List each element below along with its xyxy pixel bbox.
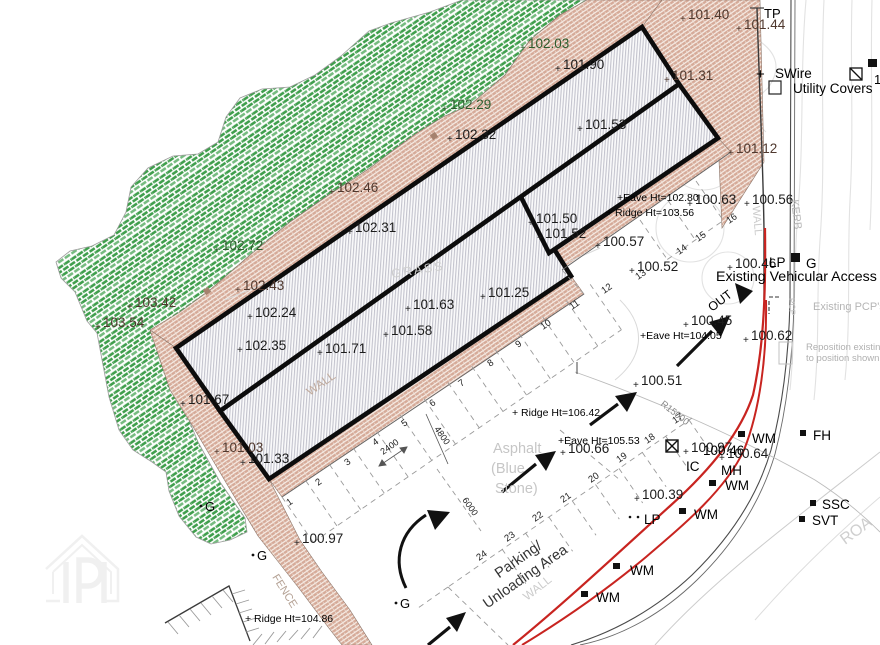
svg-text:102.46: 102.46 (337, 180, 378, 195)
svg-text:+: + (744, 199, 750, 210)
svg-text:1: 1 (874, 72, 880, 87)
svg-text:+ Ridge Ht=106.42: + Ridge Ht=106.42 (512, 407, 600, 419)
svg-text:101.71: 101.71 (325, 341, 366, 356)
svg-text:102.31: 102.31 (355, 220, 396, 235)
svg-text:to position shown: to position shown (806, 353, 879, 364)
svg-text:WM: WM (752, 431, 776, 446)
svg-text:G: G (257, 548, 267, 563)
svg-text:101.31: 101.31 (672, 68, 713, 83)
svg-text:FH: FH (813, 428, 831, 443)
svg-text:ROA: ROA (837, 514, 875, 548)
svg-text:7: 7 (456, 377, 467, 389)
svg-text:Existing PCP's: Existing PCP's (813, 301, 880, 313)
svg-text:102.35: 102.35 (245, 338, 286, 353)
svg-text:OUT: OUT (705, 287, 735, 314)
svg-text:100.64: 100.64 (727, 446, 769, 461)
svg-text:+: + (577, 124, 583, 135)
svg-text:+: + (537, 233, 543, 244)
svg-text:+: + (555, 64, 561, 75)
svg-text:+: + (756, 66, 765, 83)
svg-text:LP: LP (769, 255, 786, 270)
svg-text:102.29: 102.29 (450, 97, 491, 112)
svg-text:100.45: 100.45 (691, 313, 732, 328)
svg-text:(Blue: (Blue (491, 461, 525, 477)
svg-text:20: 20 (586, 470, 601, 485)
svg-text:+: + (629, 266, 635, 277)
svg-text:+: + (595, 241, 601, 252)
svg-text:100.39: 100.39 (642, 487, 683, 502)
svg-text:+: + (520, 43, 526, 54)
svg-text:101.40: 101.40 (688, 7, 729, 22)
svg-text:24: 24 (474, 548, 489, 563)
svg-text:+: + (95, 322, 101, 333)
svg-text:101.52: 101.52 (545, 226, 586, 241)
svg-text:SSC: SSC (822, 497, 850, 512)
svg-text:+Eave Ht=102.80: +Eave Ht=102.80 (617, 192, 699, 204)
svg-text:+: + (528, 218, 534, 229)
svg-text:+: + (743, 335, 749, 346)
svg-text:5: 5 (399, 417, 410, 429)
svg-text:100.63: 100.63 (695, 192, 736, 207)
svg-text:WALL: WALL (749, 205, 764, 235)
svg-text:100.66: 100.66 (568, 441, 609, 456)
svg-text:Stone): Stone) (495, 481, 538, 497)
svg-text:+: + (294, 538, 300, 549)
svg-text:100.97: 100.97 (302, 531, 343, 546)
svg-text:PCP: PCP (787, 298, 798, 316)
svg-text:SVT: SVT (812, 513, 838, 528)
svg-text:101.67: 101.67 (188, 392, 229, 407)
svg-text:+: + (560, 448, 566, 459)
svg-text:22: 22 (530, 509, 545, 524)
svg-text:102.43: 102.43 (243, 278, 284, 293)
svg-text:+: + (317, 348, 323, 359)
svg-text:8: 8 (485, 357, 496, 369)
svg-text:+: + (237, 345, 243, 356)
svg-text:+: + (634, 494, 640, 505)
svg-text:102.03: 102.03 (528, 36, 569, 51)
svg-text:+: + (447, 134, 453, 145)
svg-text:102.32: 102.32 (455, 127, 496, 142)
svg-text:Existing Vehicular Access: Existing Vehicular Access (716, 269, 877, 285)
svg-text:101.25: 101.25 (488, 285, 529, 300)
svg-text:+: + (480, 292, 486, 303)
svg-text:101.90: 101.90 (563, 57, 604, 72)
svg-text:101.58: 101.58 (391, 323, 432, 338)
svg-text:101.53: 101.53 (585, 117, 626, 132)
svg-text:100.62: 100.62 (751, 328, 792, 343)
svg-text:WM: WM (596, 590, 620, 605)
svg-text:+ Ridge Ht=103.56: + Ridge Ht=103.56 (606, 207, 694, 219)
svg-text:+: + (235, 285, 241, 296)
svg-text:101.33: 101.33 (248, 451, 289, 466)
svg-text:14: 14 (674, 242, 689, 257)
svg-text:21: 21 (558, 490, 573, 505)
svg-text:102.72: 102.72 (222, 238, 263, 253)
svg-text:19: 19 (614, 450, 629, 465)
svg-text:+: + (683, 447, 689, 458)
svg-text:LP: LP (644, 512, 661, 527)
svg-text:SWire: SWire (775, 66, 812, 81)
svg-text:101.12: 101.12 (736, 141, 777, 156)
svg-text:+: + (405, 304, 411, 315)
svg-text:Reposition existing: Reposition existing (806, 342, 880, 353)
svg-text:6: 6 (427, 397, 438, 409)
svg-text:100.57: 100.57 (603, 234, 644, 249)
svg-text:1: 1 (284, 496, 295, 508)
svg-text:+: + (383, 330, 389, 341)
svg-text:101.50: 101.50 (536, 211, 577, 226)
svg-text:WM: WM (694, 507, 718, 522)
svg-text:102.24: 102.24 (255, 305, 297, 320)
svg-text:Asphalt: Asphalt (493, 441, 541, 457)
svg-text:+: + (664, 75, 670, 86)
svg-text:+: + (247, 312, 253, 323)
svg-text:G: G (205, 499, 215, 514)
svg-text:+: + (728, 148, 734, 159)
svg-text:TP: TP (764, 6, 781, 21)
svg-text:2: 2 (313, 476, 324, 488)
svg-text:103.42: 103.42 (135, 295, 176, 310)
svg-text:Utility Covers: Utility Covers (793, 81, 873, 96)
svg-text:+: + (329, 187, 335, 198)
svg-text:+: + (736, 24, 742, 35)
svg-text:18: 18 (642, 431, 657, 446)
svg-text:101.63: 101.63 (413, 297, 454, 312)
svg-text:WM: WM (725, 478, 749, 493)
svg-text:MH: MH (721, 463, 742, 478)
svg-text:23: 23 (502, 529, 517, 544)
svg-text:WM: WM (630, 563, 654, 578)
svg-text:+: + (442, 104, 448, 115)
svg-text:+ Ridge Ht=104.86: + Ridge Ht=104.86 (245, 613, 333, 625)
svg-text:15: 15 (693, 229, 708, 244)
svg-text:+: + (680, 14, 686, 25)
svg-text:100.51: 100.51 (641, 373, 682, 388)
svg-text:3: 3 (342, 456, 353, 468)
svg-text:+Eave Ht=104.05: +Eave Ht=104.05 (640, 330, 722, 342)
svg-text:+: + (214, 447, 220, 458)
svg-text:+: + (347, 227, 353, 238)
svg-text:103.54: 103.54 (103, 315, 145, 330)
svg-text:12: 12 (599, 281, 614, 296)
svg-text:100.52: 100.52 (637, 259, 678, 274)
svg-text:IC: IC (686, 459, 700, 474)
svg-text:+: + (127, 302, 133, 313)
svg-text:G: G (400, 596, 410, 611)
svg-text:+: + (214, 245, 220, 256)
svg-text:+: + (240, 458, 246, 469)
svg-text:+: + (180, 399, 186, 410)
svg-text:+: + (633, 380, 639, 391)
svg-text:9: 9 (513, 338, 524, 350)
